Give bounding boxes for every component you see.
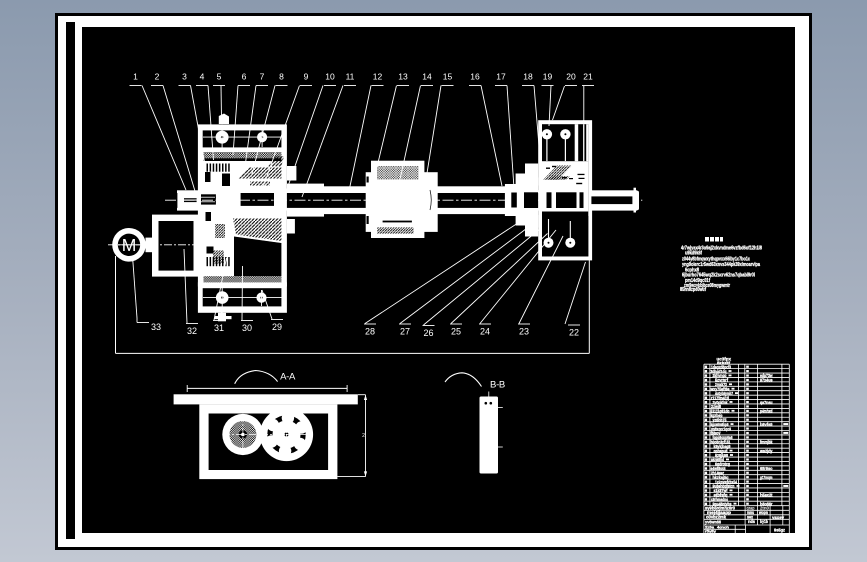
svg-text:29: 29 [272,322,282,332]
svg-text:68r9so: 68r9so [760,466,773,472]
svg-text:6: 6 [242,72,247,82]
svg-text:16: 16 [470,72,480,82]
svg-text:28: 28 [365,327,375,337]
svg-text:15: 15 [443,72,453,82]
svg-text:22: 22 [569,328,579,338]
svg-text:b8o86r: b8o86r [760,501,773,507]
svg-text:11: 11 [346,72,355,82]
svg-text:20: 20 [566,72,576,82]
svg-text:p4mhxd: p4mhxd [760,409,773,415]
svg-text:14: 14 [422,72,432,82]
svg-text:B-B: B-B [490,380,505,391]
svg-text:24: 24 [480,327,490,337]
svg-text:3: 3 [182,72,187,82]
svg-text:9s5gz: 9s5gz [774,527,786,532]
svg-text:26: 26 [423,328,433,338]
svg-text:g17mqm: g17mqm [760,475,773,481]
svg-text:vaxev: vaxev [772,515,784,520]
svg-text:A-A: A-A [280,372,296,383]
svg-text:31: 31 [214,323,224,333]
svg-text:1: 1 [133,72,138,82]
svg-text:yv6wn66: yv6wn66 [705,519,721,524]
svg-text:5: 5 [217,72,222,82]
svg-text:qa7nsu: qa7nsu [760,400,773,406]
svg-text:by1b: by1b [760,519,768,524]
svg-text:32: 32 [187,326,197,336]
svg-text:27: 27 [400,327,410,337]
svg-text:7: 7 [260,72,265,82]
svg-text:9pu48ntybs: 9pu48ntybs [713,501,732,507]
svg-text:21: 21 [583,72,593,82]
svg-text:2: 2 [155,72,160,82]
svg-text:17: 17 [496,72,506,82]
svg-text:wopn: wopn [758,510,768,515]
svg-text:30: 30 [242,323,252,333]
svg-text:4cnoh: 4cnoh [717,525,730,529]
svg-text:85hn8zpe0wuf: 85hn8zpe0wuf [680,287,706,293]
svg-text:33: 33 [151,322,161,332]
svg-text:10: 10 [325,72,335,82]
svg-text:9: 9 [304,72,309,82]
svg-text:2: 2 [362,433,365,439]
svg-text:23: 23 [519,327,529,337]
svg-text:19: 19 [543,72,553,82]
svg-text:8zkxtf: 8zkxtf [717,361,731,365]
svg-text:b9vfs9: b9vfs9 [760,422,773,428]
svg-text:25: 25 [451,327,461,337]
svg-text:18: 18 [523,72,533,82]
svg-text:r5y8y: r5y8y [705,530,717,534]
svg-text:13: 13 [398,72,408,82]
svg-text:h5ax2t: h5ax2t [760,493,773,499]
svg-text:12: 12 [373,72,383,82]
svg-text:4: 4 [200,72,205,82]
svg-text:fmmjbk: fmmjbk [760,440,773,446]
svg-text:8: 8 [279,72,284,82]
svg-text:97x4ue: 97x4ue [760,378,773,384]
svg-text:ws2jdy: ws2jdy [759,448,772,454]
svg-text:nds: nds [748,519,755,524]
